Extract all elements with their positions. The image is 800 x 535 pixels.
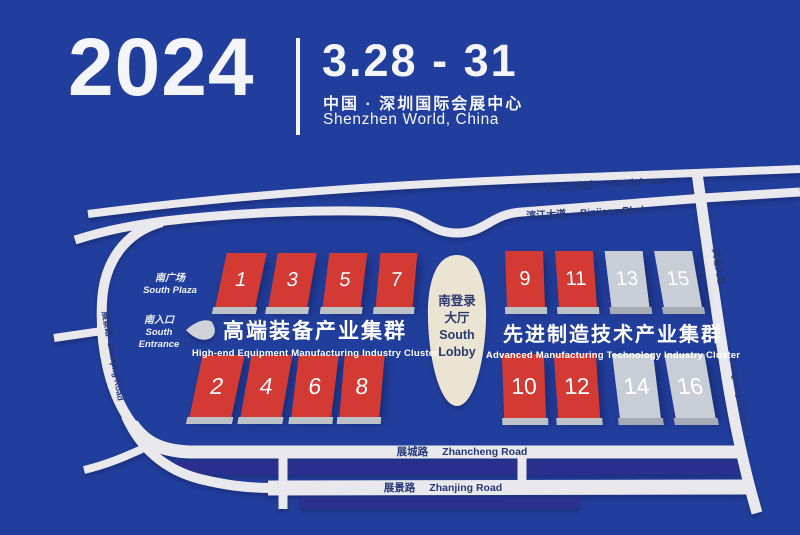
- hall-number: 11: [565, 268, 587, 291]
- cluster-right-en: Advanced Manufacturing Technology Indust…: [482, 350, 744, 361]
- hall-5: 5: [323, 253, 368, 307]
- zhancheng-label-cn: 展城路: [397, 446, 429, 458]
- label-zhanjing-road: 展景路Zhanjing Road: [358, 480, 528, 495]
- hall-7: 7: [376, 253, 418, 307]
- cluster-left-en: High-end Equipment Manufacturing Industr…: [178, 348, 452, 359]
- south-plaza-en: South Plaza: [130, 285, 210, 297]
- hall-number: 7: [390, 269, 403, 292]
- lobby-cn-1: 南登录: [426, 293, 488, 310]
- cluster-left-label: 高端装备产业集群 High-end Equipment Manufacturin…: [178, 315, 452, 359]
- hall-number: 15: [665, 268, 691, 291]
- hall-number: 8: [354, 373, 369, 400]
- hall-number: 2: [208, 373, 227, 400]
- south-plaza-label: 南广场 South Plaza: [130, 272, 210, 297]
- binjiang-label-cn: 滨江大道: [526, 209, 567, 222]
- hall-number: 16: [675, 373, 705, 400]
- hall-12: 12: [554, 354, 600, 418]
- hall-13: 13: [605, 251, 650, 307]
- hall-number: 14: [622, 373, 651, 400]
- cluster-left-cn: 高端装备产业集群: [178, 315, 452, 345]
- south-plaza-cn: 南广场: [130, 272, 210, 285]
- hall-number: 4: [258, 373, 276, 400]
- hall-11: 11: [555, 251, 597, 307]
- hall-number: 10: [511, 373, 538, 400]
- hall-9: 9: [505, 251, 545, 307]
- hall-6: 6: [291, 355, 339, 417]
- hall-number: 1: [233, 269, 249, 292]
- hall-number: 12: [563, 373, 590, 400]
- hall-number: 13: [614, 268, 639, 291]
- venue-map: 13579111315246810121416 广深沿江高速S3 Highway…: [0, 0, 800, 535]
- road-left-stub: [54, 331, 102, 338]
- label-zhancheng-road: 展城路Zhancheng Road: [377, 444, 547, 459]
- hall-number: 3: [285, 269, 300, 292]
- zhancheng-label-en: Zhancheng Road: [442, 446, 527, 458]
- hall-number: 6: [307, 373, 323, 400]
- cluster-right-cn: 先进制造技术产业集群: [482, 318, 744, 347]
- zhanjing-label-en: Zhanjing Road: [429, 482, 502, 494]
- hall-10: 10: [502, 354, 546, 418]
- cluster-right-label: 先进制造技术产业集群 Advanced Manufacturing Techno…: [482, 318, 744, 361]
- hall-14: 14: [612, 354, 661, 418]
- hall-number: 9: [519, 268, 531, 291]
- hall-number: 5: [338, 269, 352, 292]
- zhanjing-label-cn: 展景路: [384, 482, 416, 494]
- road-ramp-southwest: [84, 449, 142, 470]
- hall-8: 8: [339, 355, 384, 417]
